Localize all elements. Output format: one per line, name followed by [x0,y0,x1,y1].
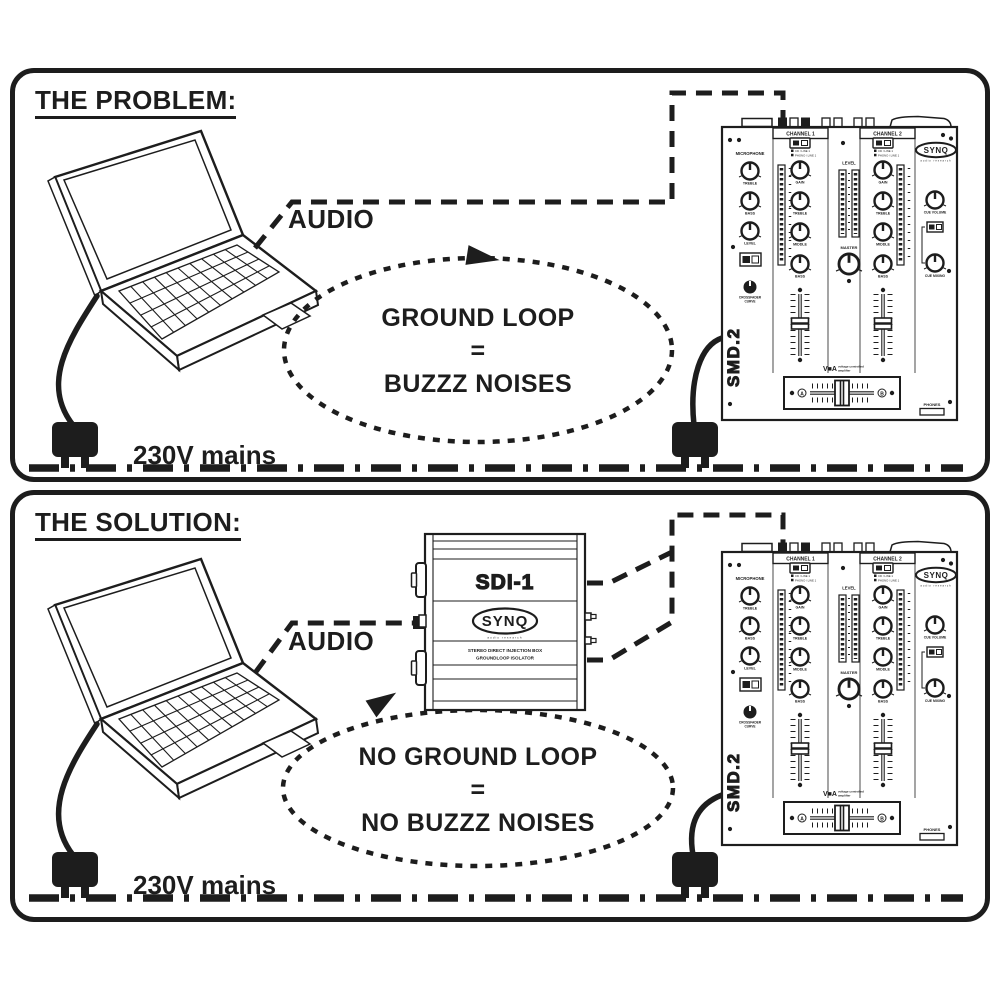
problem-panel-art [15,73,985,477]
loop-line-2: = [288,335,668,368]
solution-panel: THE SOLUTION: AUDIO NO GROUND LOOP = NO … [10,490,990,922]
loop-line-2: = [288,774,668,807]
panel-title: THE PROBLEM: [35,85,236,116]
laptop-power-cord [59,296,97,425]
audio-cable-label: AUDIO [288,204,374,235]
diagram-page: { "problem_panel": { "title": "THE PROBL… [0,0,1000,1000]
mains-label: 230V mains [133,440,276,471]
mixer-power-cord [692,795,722,855]
loop-line-3: BUZZZ NOISES [288,368,668,401]
mixer-illustration [722,542,957,846]
solution-panel-art [15,495,985,917]
loop-arrow-icon [366,684,402,717]
loop-line-1: NO GROUND LOOP [288,741,668,774]
mixer-power-cord [693,338,722,425]
laptop-mains-plug [52,422,98,468]
problem-panel: THE PROBLEM: AUDIO GROUND LOOP = BUZZZ N… [10,68,990,482]
laptop-illustration [48,559,318,798]
laptop-mains-plug [52,852,98,898]
mixer-illustration [722,117,957,421]
mixer-mains-plug [672,852,718,898]
ground-loop-text: GROUND LOOP = BUZZZ NOISES [288,302,668,401]
isolator-output-cable-top [587,552,672,583]
laptop-power-cord [59,724,97,855]
loop-line-3: NO BUZZZ NOISES [288,807,668,840]
isolator-illustration [412,534,597,710]
no-ground-loop-text: NO GROUND LOOP = NO BUZZZ NOISES [288,741,668,840]
mains-label: 230V mains [133,870,276,901]
loop-arrow-icon [465,245,501,270]
laptop-illustration [48,131,318,370]
loop-line-1: GROUND LOOP [288,302,668,335]
audio-cable-label: AUDIO [288,626,374,657]
panel-title: THE SOLUTION: [35,507,241,538]
mixer-mains-plug [672,422,718,468]
